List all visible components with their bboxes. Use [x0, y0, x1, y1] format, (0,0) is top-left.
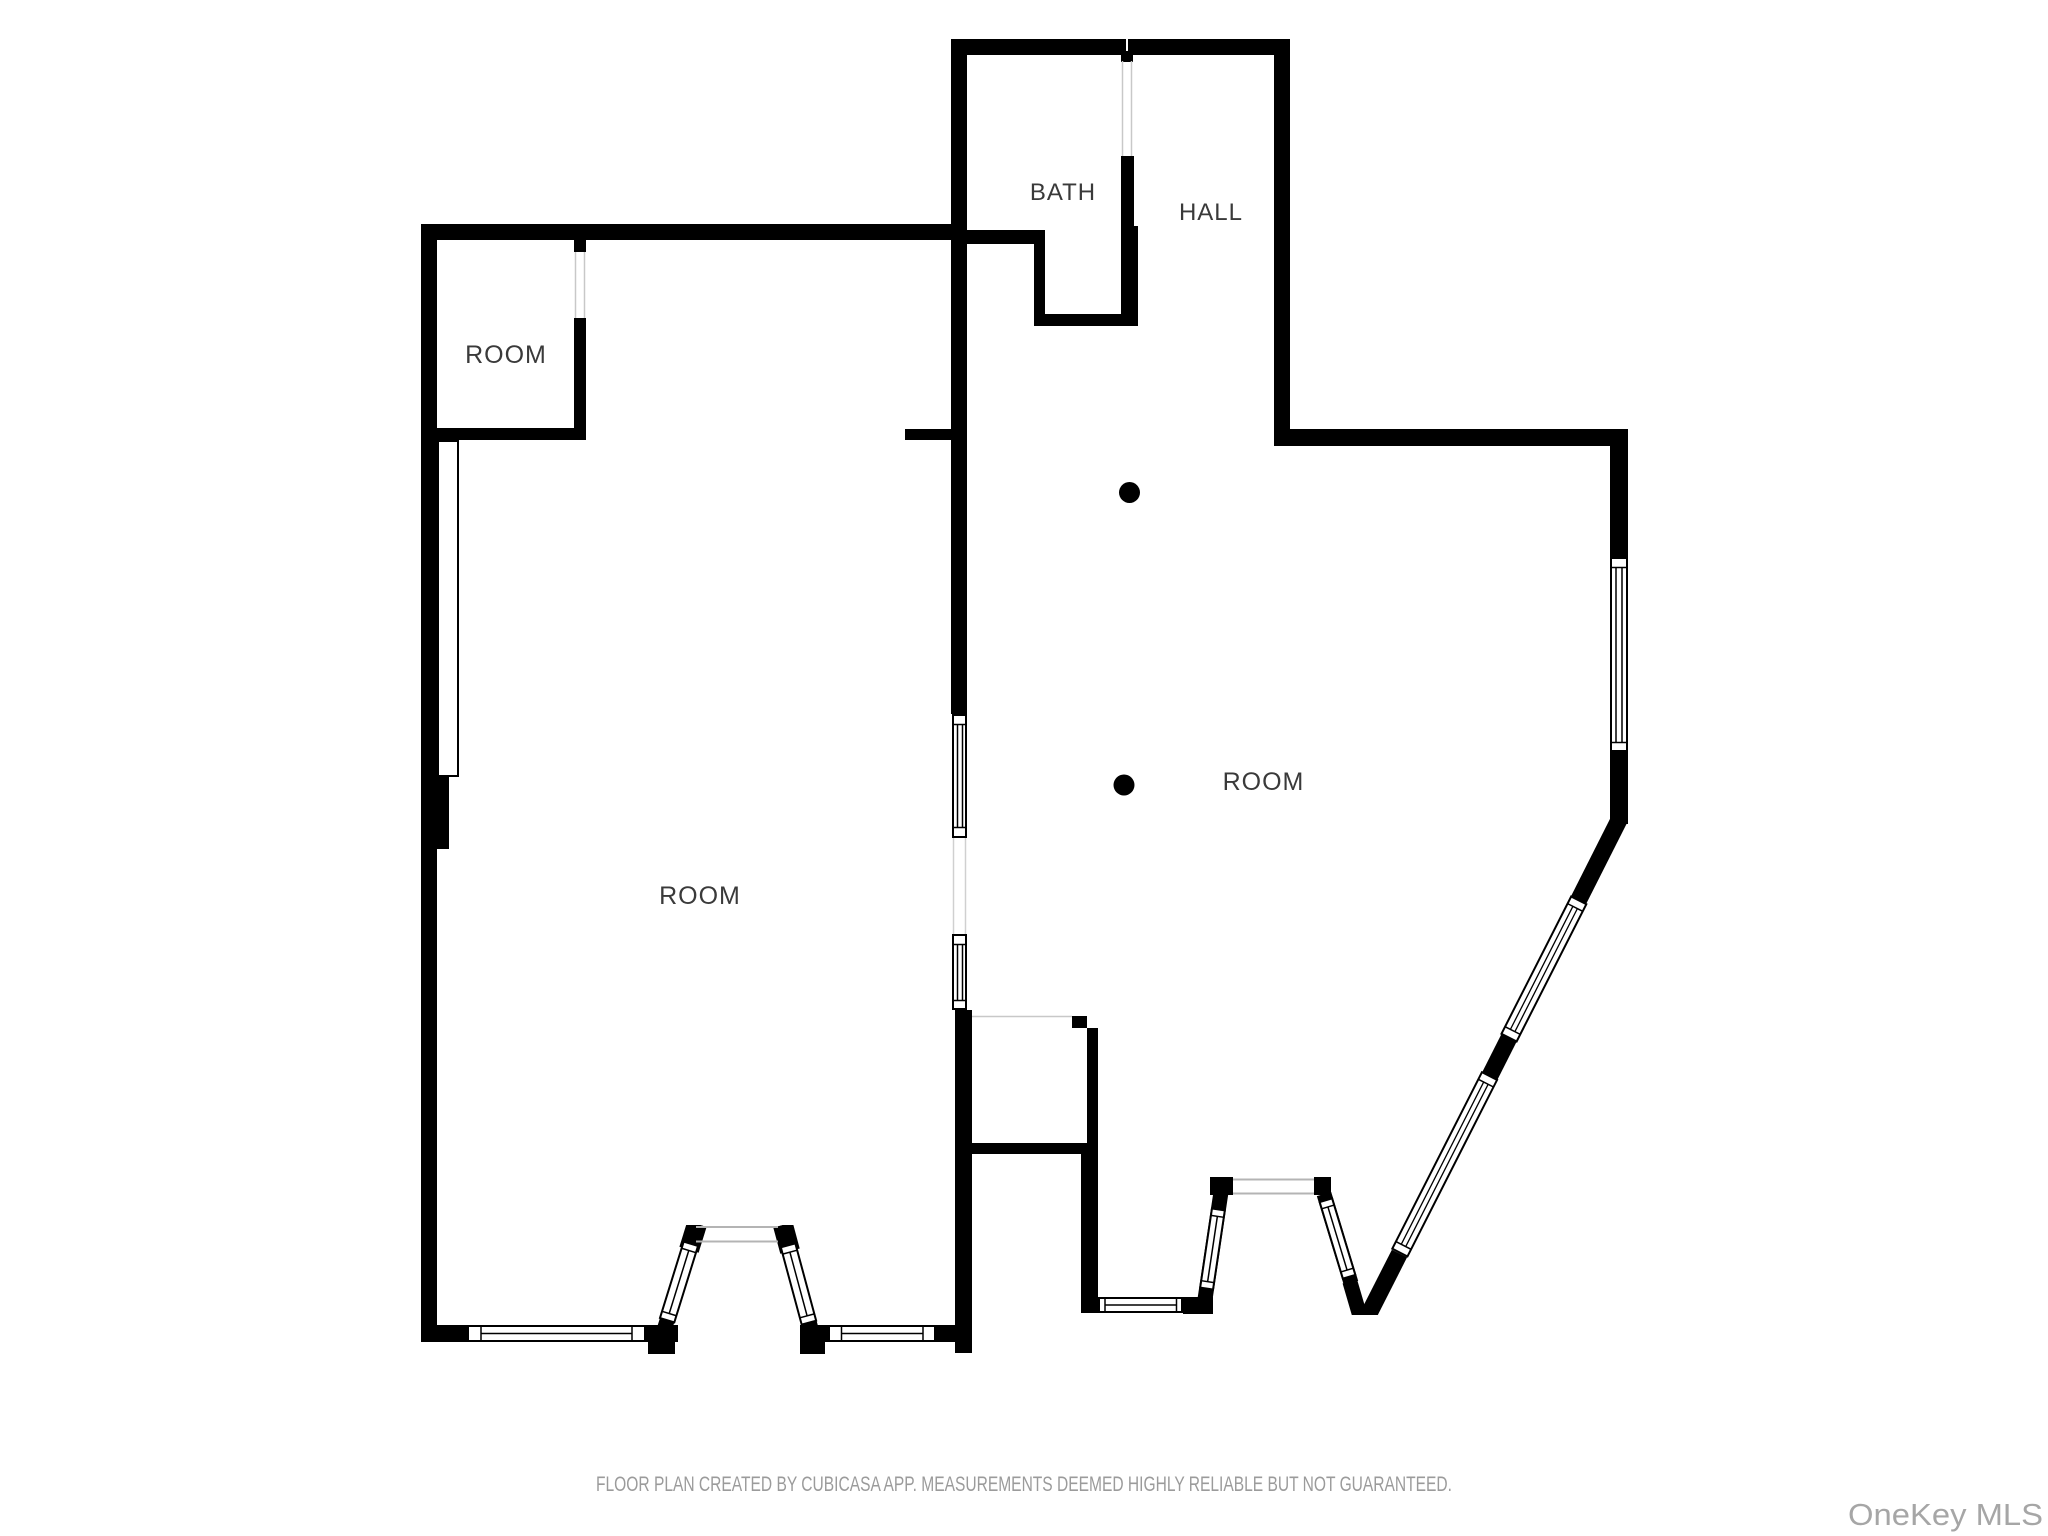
svg-text:ROOM: ROOM [659, 882, 741, 910]
svg-text:FLOOR PLAN CREATED BY CUBICASA: FLOOR PLAN CREATED BY CUBICASA APP. MEAS… [596, 1472, 1452, 1496]
svg-text:OneKey MLS: OneKey MLS [1848, 1497, 2043, 1532]
svg-text:HALL: HALL [1179, 199, 1243, 226]
svg-text:BATH: BATH [1030, 179, 1096, 206]
svg-text:ROOM: ROOM [465, 341, 547, 369]
svg-text:ROOM: ROOM [1223, 768, 1305, 796]
